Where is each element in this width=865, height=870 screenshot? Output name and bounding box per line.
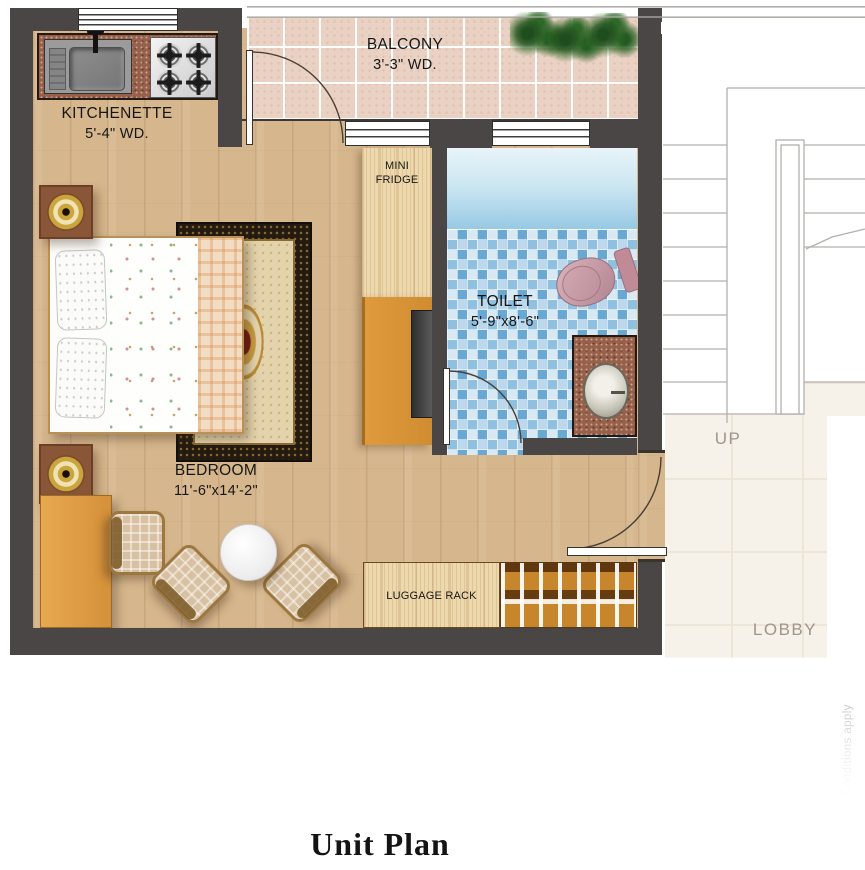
plan-reflection <box>0 657 865 817</box>
balcony-door <box>246 50 253 145</box>
wall-toilet-bottom <box>523 438 637 455</box>
round-table <box>220 524 277 581</box>
reflection-fade <box>0 657 865 817</box>
chair <box>109 511 165 575</box>
pillow <box>55 337 108 419</box>
burner-icon <box>157 43 182 68</box>
wall-kitchen-balcony <box>218 8 242 147</box>
desk <box>40 495 112 628</box>
washbasin-counter <box>572 335 637 437</box>
wall-bottom <box>10 628 662 655</box>
bedroom-label-block: BEDROOM 11'-6"x14'-2" <box>136 461 296 501</box>
washbasin <box>583 363 629 419</box>
wall-toilet-top <box>430 119 492 148</box>
bedroom-dimension: 11'-6"x14'-2" <box>136 481 296 501</box>
wall-top <box>178 8 218 31</box>
faucet-icon <box>93 31 98 53</box>
shower-area <box>447 148 637 232</box>
slatted-rack <box>500 562 637 628</box>
bedroom-label: BEDROOM <box>136 461 296 481</box>
page-title: Unit Plan <box>0 826 760 863</box>
toilet-label-block: TOILET 5'-9"x8'-6" <box>425 292 585 332</box>
luggage-rack-label: LUGGAGE RACK <box>363 590 500 604</box>
sink-basin <box>69 47 125 91</box>
plant-icon <box>586 13 644 61</box>
kitchenette-label-block: KITCHENETTE 5'-4" WD. <box>37 104 197 144</box>
lobby-floor-upper <box>804 382 865 416</box>
kitchenette-label: KITCHENETTE <box>37 104 197 124</box>
kitchen-counter <box>37 33 218 100</box>
balcony-label-block: BALCONY 3'-3" WD. <box>325 35 485 75</box>
kitchen-sink <box>44 39 132 94</box>
tv-cabinet <box>362 297 432 445</box>
kitchen-window <box>78 8 178 31</box>
sink-drainer <box>49 48 66 90</box>
wall-left <box>10 8 33 655</box>
doorway-edge <box>638 450 665 453</box>
entry-door <box>567 547 667 556</box>
stairs-up-label: UP <box>700 429 756 449</box>
balcony-dimension: 3'-3" WD. <box>325 55 485 75</box>
mini-fridge-label: MINI FRIDGE <box>374 160 420 187</box>
balcony-label: BALCONY <box>325 35 485 55</box>
toilet-door <box>443 368 450 445</box>
lobby-label: LOBBY <box>742 620 828 640</box>
pillow <box>55 249 108 331</box>
bedside-table-lamp <box>39 185 93 239</box>
bedroom-balcony-window <box>345 121 430 146</box>
stove <box>150 37 216 98</box>
kitchenette-dimension: 5'-4" WD. <box>37 124 197 144</box>
burner-icon <box>186 70 211 95</box>
unit-plan-page: KITCHENETTE 5'-4" WD. BALCONY 3'-3" WD. … <box>0 0 865 870</box>
doorway-edge <box>638 559 665 562</box>
bed-blanket <box>198 238 242 432</box>
bed-sheet <box>110 238 198 432</box>
entry-doorway-floor <box>638 450 665 562</box>
wall-notch <box>661 22 668 34</box>
toilet-window <box>492 121 590 146</box>
wall-toilet-top <box>590 119 638 148</box>
burner-icon <box>157 70 182 95</box>
wall-top <box>10 8 78 31</box>
wall-right-upper <box>638 8 662 450</box>
floor-plan: KITCHENETTE 5'-4" WD. BALCONY 3'-3" WD. … <box>0 0 865 658</box>
burner-icon <box>186 43 211 68</box>
toilet-dimension: 5'-9"x8'-6" <box>425 312 585 332</box>
double-bed <box>48 236 244 434</box>
toilet-label: TOILET <box>425 292 585 312</box>
